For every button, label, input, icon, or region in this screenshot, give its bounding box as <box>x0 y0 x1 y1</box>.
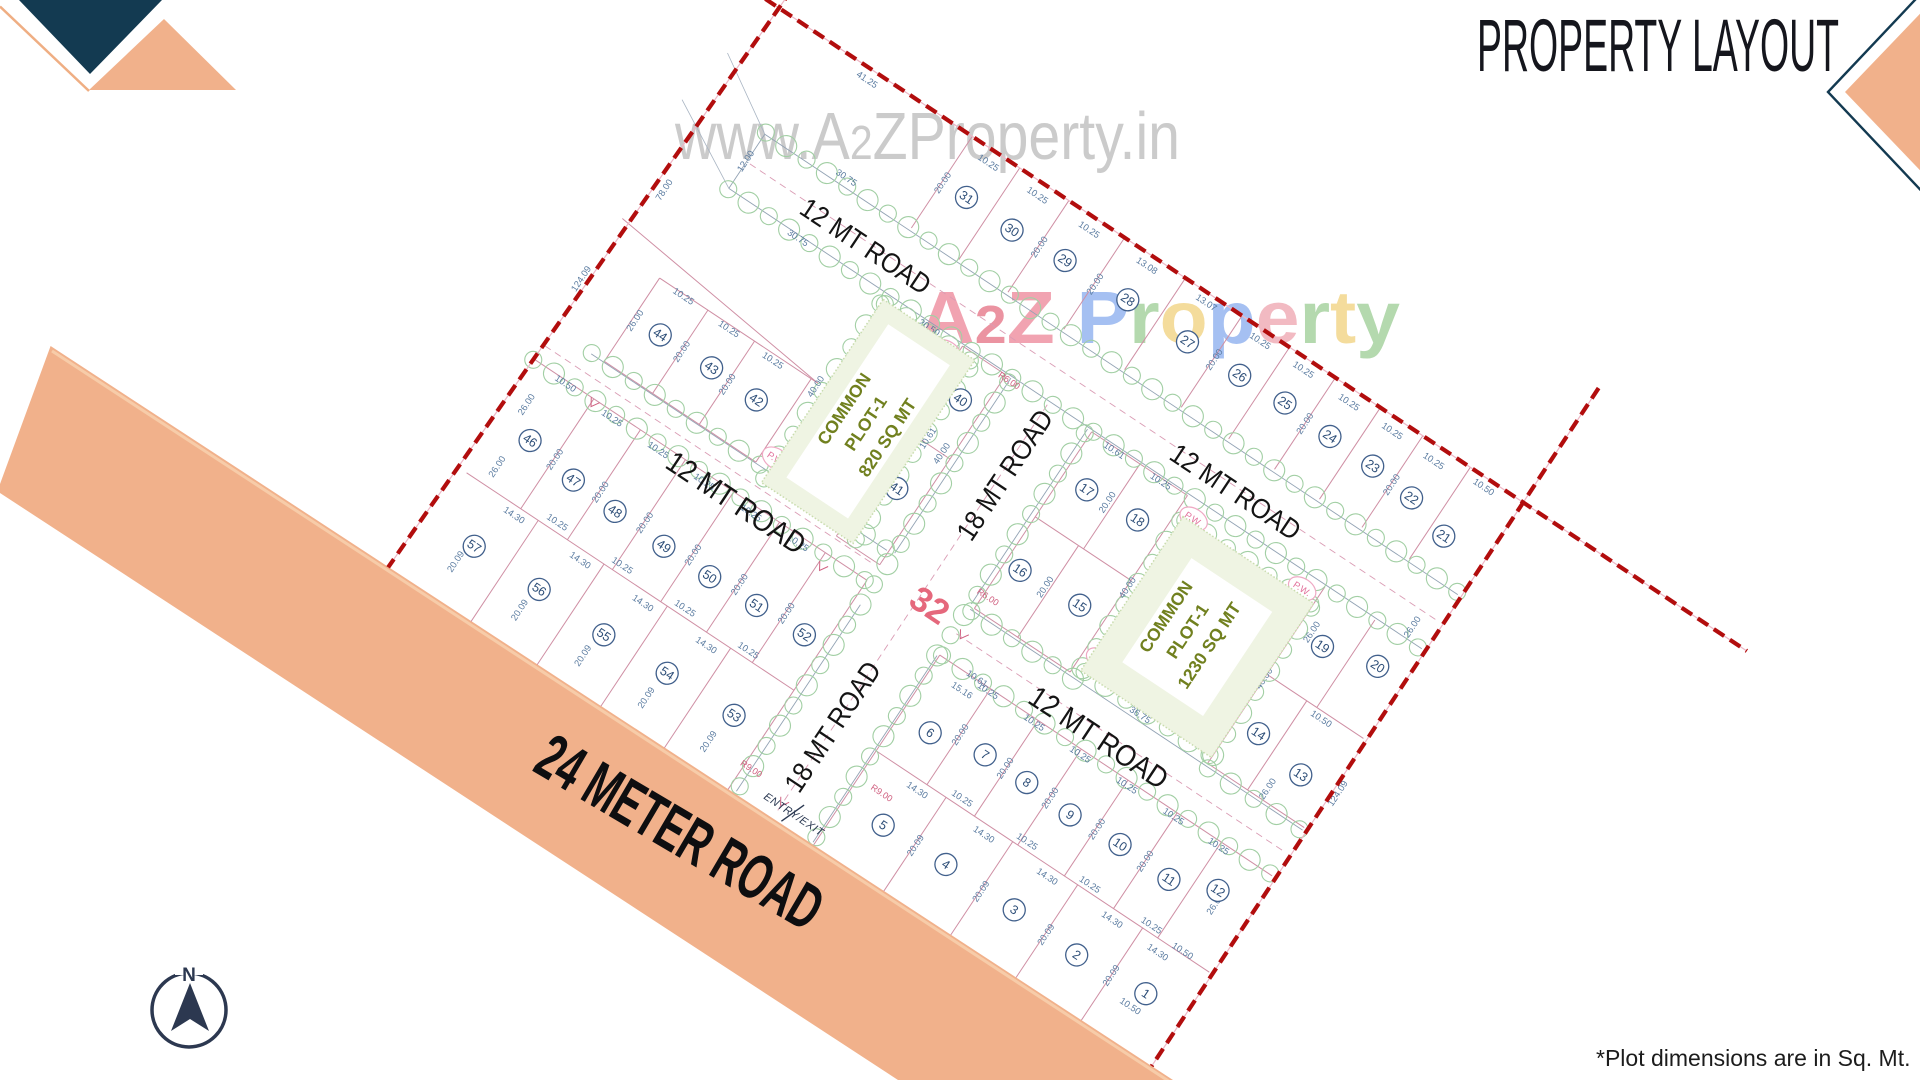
svg-text:PROPERTY LAYOUT: PROPERTY LAYOUT <box>1477 4 1839 87</box>
svg-text:N: N <box>182 965 196 986</box>
svg-text:*Plot dimensions are in Sq. Mt: *Plot dimensions are in Sq. Mt. <box>1596 1045 1910 1071</box>
